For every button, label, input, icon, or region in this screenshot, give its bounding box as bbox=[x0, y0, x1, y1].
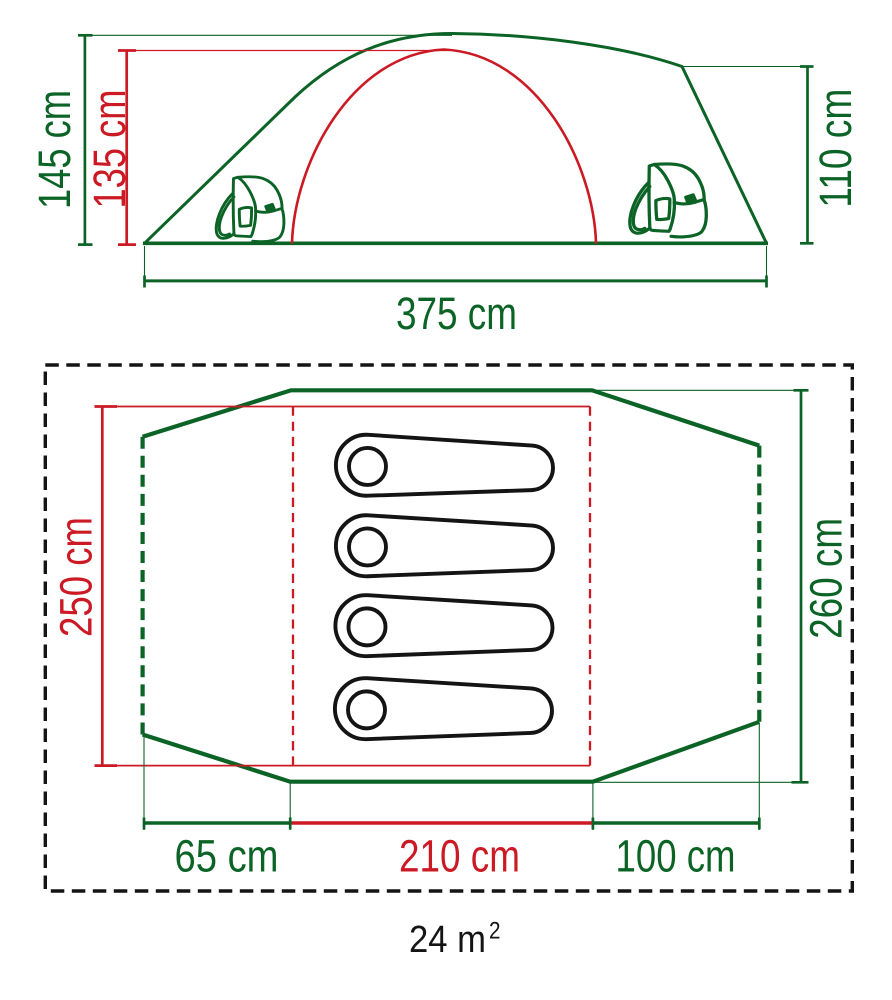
svg-text:135 cm: 135 cm bbox=[84, 90, 135, 209]
svg-text:260 cm: 260 cm bbox=[801, 518, 852, 639]
svg-text:210 cm: 210 cm bbox=[399, 831, 520, 882]
svg-text:24 m: 24 m bbox=[409, 919, 486, 961]
svg-text:2: 2 bbox=[489, 918, 501, 945]
svg-text:375 cm: 375 cm bbox=[396, 288, 517, 339]
svg-text:65 cm: 65 cm bbox=[175, 831, 279, 882]
svg-text:145 cm: 145 cm bbox=[29, 90, 80, 209]
svg-text:100 cm: 100 cm bbox=[616, 831, 736, 882]
svg-text:250 cm: 250 cm bbox=[51, 517, 102, 637]
svg-text:110 cm: 110 cm bbox=[810, 89, 861, 208]
